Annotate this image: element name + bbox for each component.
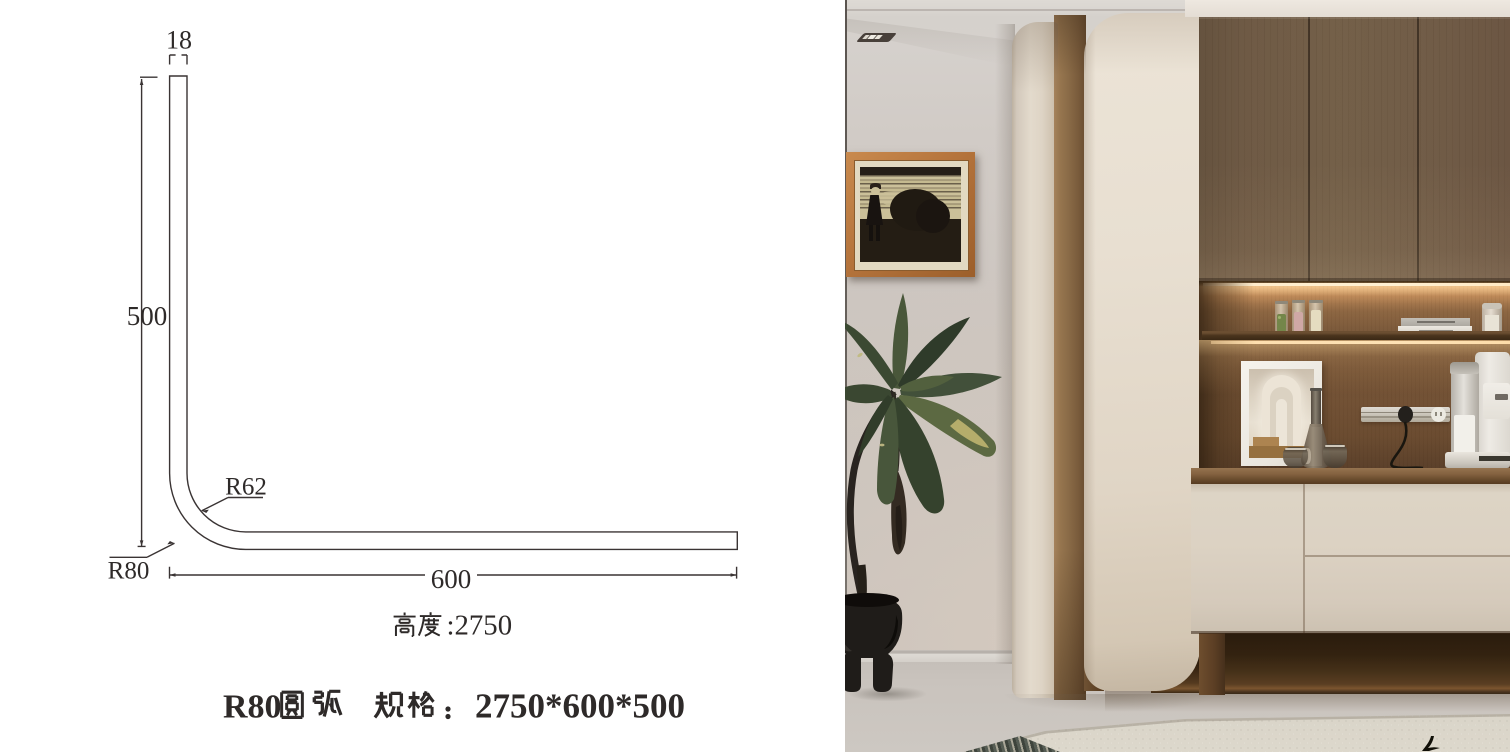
svg-text:R80: R80 (223, 689, 282, 726)
svg-text:R80: R80 (108, 558, 150, 585)
svg-text:2750*600*500: 2750*600*500 (475, 687, 685, 726)
svg-text:18: 18 (166, 26, 192, 55)
svg-text::2750: :2750 (447, 610, 513, 642)
svg-text:500: 500 (127, 301, 168, 331)
svg-text:600: 600 (431, 564, 472, 594)
svg-text:R62: R62 (225, 474, 267, 501)
